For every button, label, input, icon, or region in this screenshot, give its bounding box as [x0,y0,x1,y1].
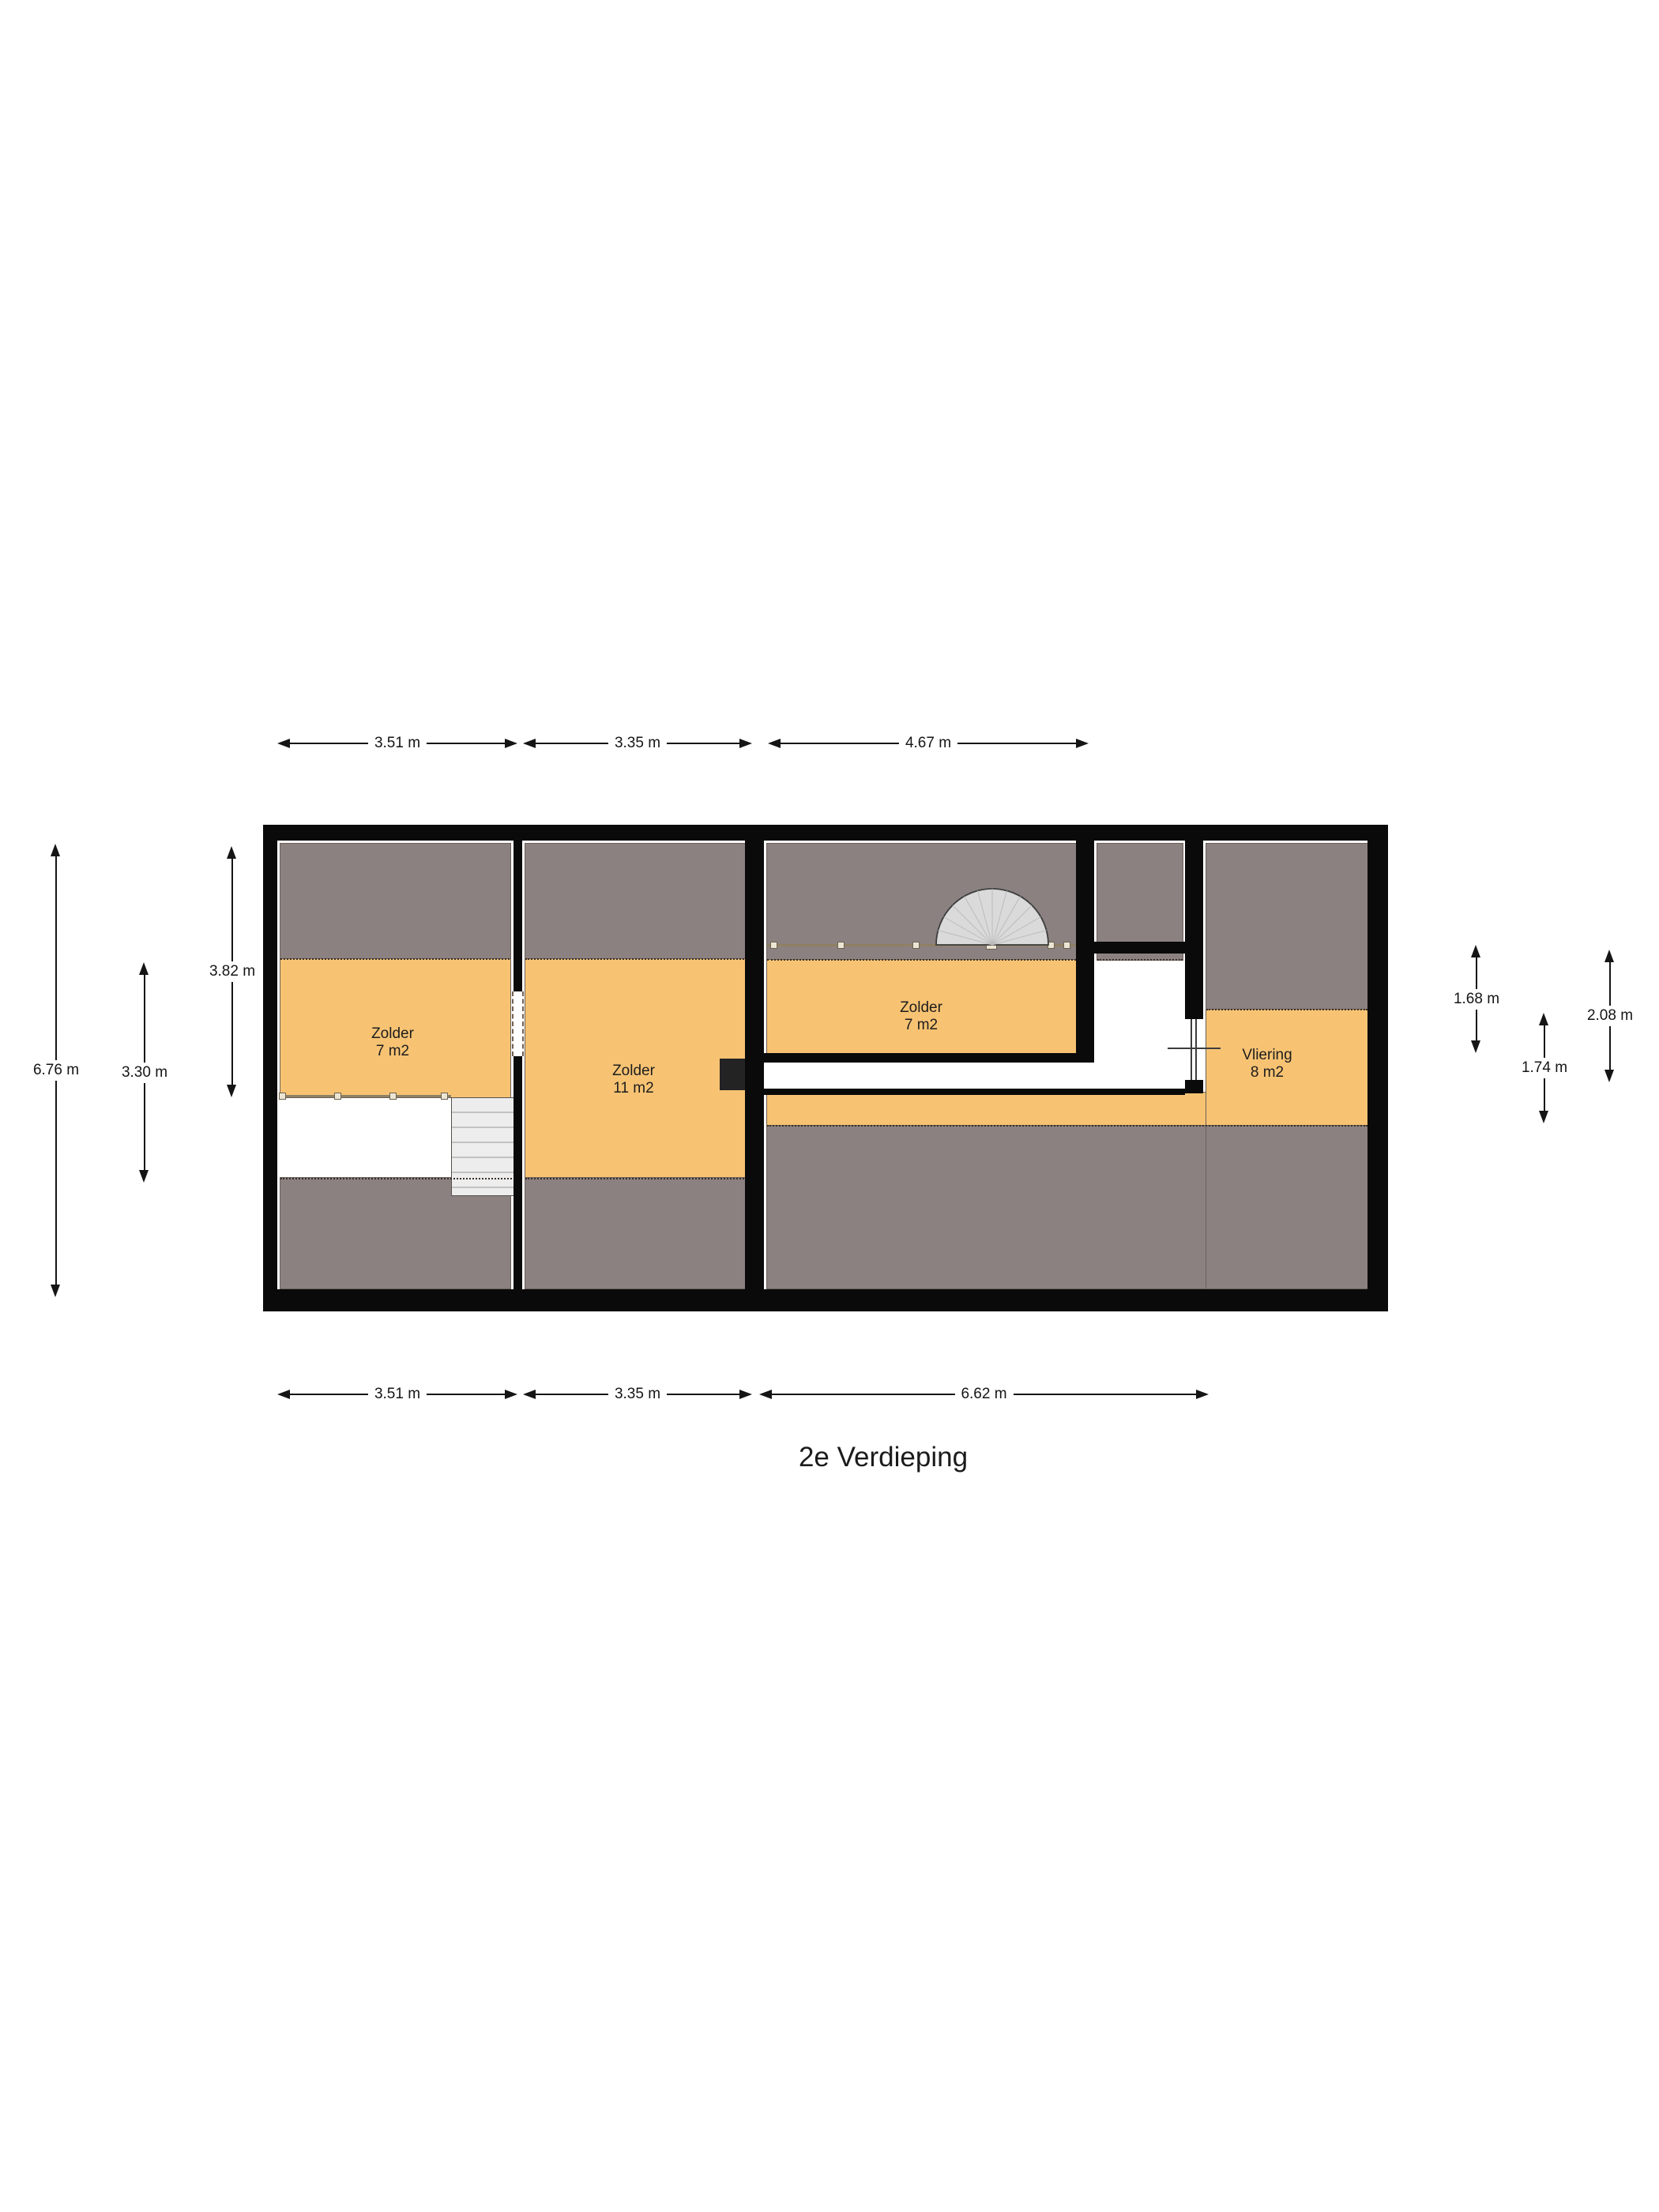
kneewall-dotted-line [1206,1009,1367,1010]
dim-label: 3.35 m [608,1386,667,1403]
railing-post [279,1093,286,1100]
room-label-zolder-left: Zolder 7 m2 [371,1025,414,1060]
exterior-wall-right [1367,825,1388,1311]
arrow-left-icon [523,739,536,748]
arrow-right-icon [505,739,517,748]
railing-post [770,942,777,949]
loft-ladder-icon [1195,1019,1197,1080]
arrow-down-icon [227,1085,236,1097]
kneewall-dotted-line [767,959,1076,961]
arrow-up-icon [1604,950,1614,962]
arrow-right-icon [739,1390,752,1399]
room-mid-sloped-ceiling-top [525,843,748,960]
room-name: Vliering [1242,1047,1292,1063]
interior-wall-1-lower [513,1056,522,1290]
spiral-staircase-icon [935,885,1050,946]
kneewall-dotted-line [280,958,510,960]
floorplan-page: Zolder 7 m2 Zolder 11 m2 Zolder 7 m2 Vli… [0,0,1659,2212]
room-area: 8 m2 [1251,1064,1284,1081]
railing-left [280,1095,451,1097]
chimney-block [720,1059,745,1090]
vliering-sloped-ceiling-bottom [1206,1125,1369,1289]
arrow-right-icon [1196,1390,1209,1399]
dim-label: 4.67 m [899,735,957,752]
kneewall-dotted-line [525,1178,747,1179]
room-area: 7 m2 [905,1017,938,1033]
room-label-zolder-mid: Zolder 11 m2 [612,1063,655,1097]
arrow-up-icon [1471,945,1480,957]
closet-bottom-wall [1094,942,1185,954]
loft-ladder-icon [1191,1019,1192,1080]
arrow-left-icon [759,1390,772,1399]
dim-label: 1.74 m [1517,1058,1572,1078]
railing-post [912,942,920,949]
arrow-right-icon [1076,739,1089,748]
dim-label: 3.30 m [117,1063,172,1083]
dim-label: 2.08 m [1582,1006,1638,1026]
room-left-sloped-ceiling-top [280,843,511,960]
arrow-down-icon [1471,1040,1480,1053]
room-label-vliering: Vliering 8 m2 [1242,1047,1292,1082]
railing-post [389,1093,397,1100]
railing-post [441,1093,448,1100]
interior-wall-1-upper [513,841,522,991]
railing-post [334,1093,341,1100]
arrow-left-icon [277,739,290,748]
railing-post [837,942,845,949]
room-label-zolder-right: Zolder 7 m2 [900,999,942,1034]
arrow-left-icon [768,739,781,748]
dim-label: 6.62 m [954,1386,1013,1403]
dim-label: 3.51 m [368,735,427,752]
room-mid-sloped-ceiling-bottom [525,1177,748,1289]
arrow-right-icon [739,739,752,748]
kneewall-dotted-line [1097,959,1183,961]
room-right-bottom-wall [764,1053,1094,1063]
kneewall-dotted-line [280,1178,515,1179]
exterior-wall-left [263,825,277,1311]
closet-topright-sloped-ceiling [1097,843,1183,943]
dim-label: 3.35 m [608,735,667,752]
interior-wall-3 [1076,841,1094,1063]
arrow-down-icon [1604,1070,1614,1082]
room-area: 11 m2 [613,1080,653,1097]
door-opening-dashed [512,991,524,1056]
dim-label: 1.68 m [1449,989,1504,1010]
corridor-bottom-wall [764,1089,1185,1095]
loft-ladder-crossline [1168,1048,1221,1049]
arrow-up-icon [227,846,236,859]
kneewall-dotted-line [767,1125,1367,1127]
arrow-left-icon [277,1390,290,1399]
room-name: Zolder [612,1063,655,1079]
interior-wall-2 [745,841,764,1289]
corridor-sloped-ceiling-bottom [766,1125,1206,1289]
arrow-up-icon [51,844,60,856]
straight-staircase [451,1097,515,1196]
arrow-right-icon [505,1390,517,1399]
dim-label: 6.76 m [28,1060,84,1081]
room-area: 7 m2 [376,1043,409,1059]
corridor-floor-strip [766,1092,1206,1127]
dim-label: 3.82 m [205,961,260,982]
arrow-down-icon [139,1170,149,1183]
arrow-down-icon [51,1285,60,1297]
room-name: Zolder [900,999,942,1016]
arrow-up-icon [1539,1013,1548,1025]
dim-label: 3.51 m [368,1386,427,1403]
vliering-sloped-ceiling-top [1206,843,1369,1010]
kneewall-dotted-line [525,958,747,960]
arrow-left-icon [523,1390,536,1399]
exterior-wall-top [263,825,1388,841]
interior-wall-4-upper [1185,841,1203,1019]
stairwell-void-left [280,1098,451,1177]
railing-post [1063,942,1070,949]
arrow-up-icon [139,962,149,975]
interior-wall-4-stub [1185,1080,1203,1093]
arrow-down-icon [1539,1111,1548,1123]
room-name: Zolder [371,1025,414,1042]
exterior-wall-bottom [263,1289,1388,1311]
floor-title: 2e Verdieping [799,1442,968,1473]
